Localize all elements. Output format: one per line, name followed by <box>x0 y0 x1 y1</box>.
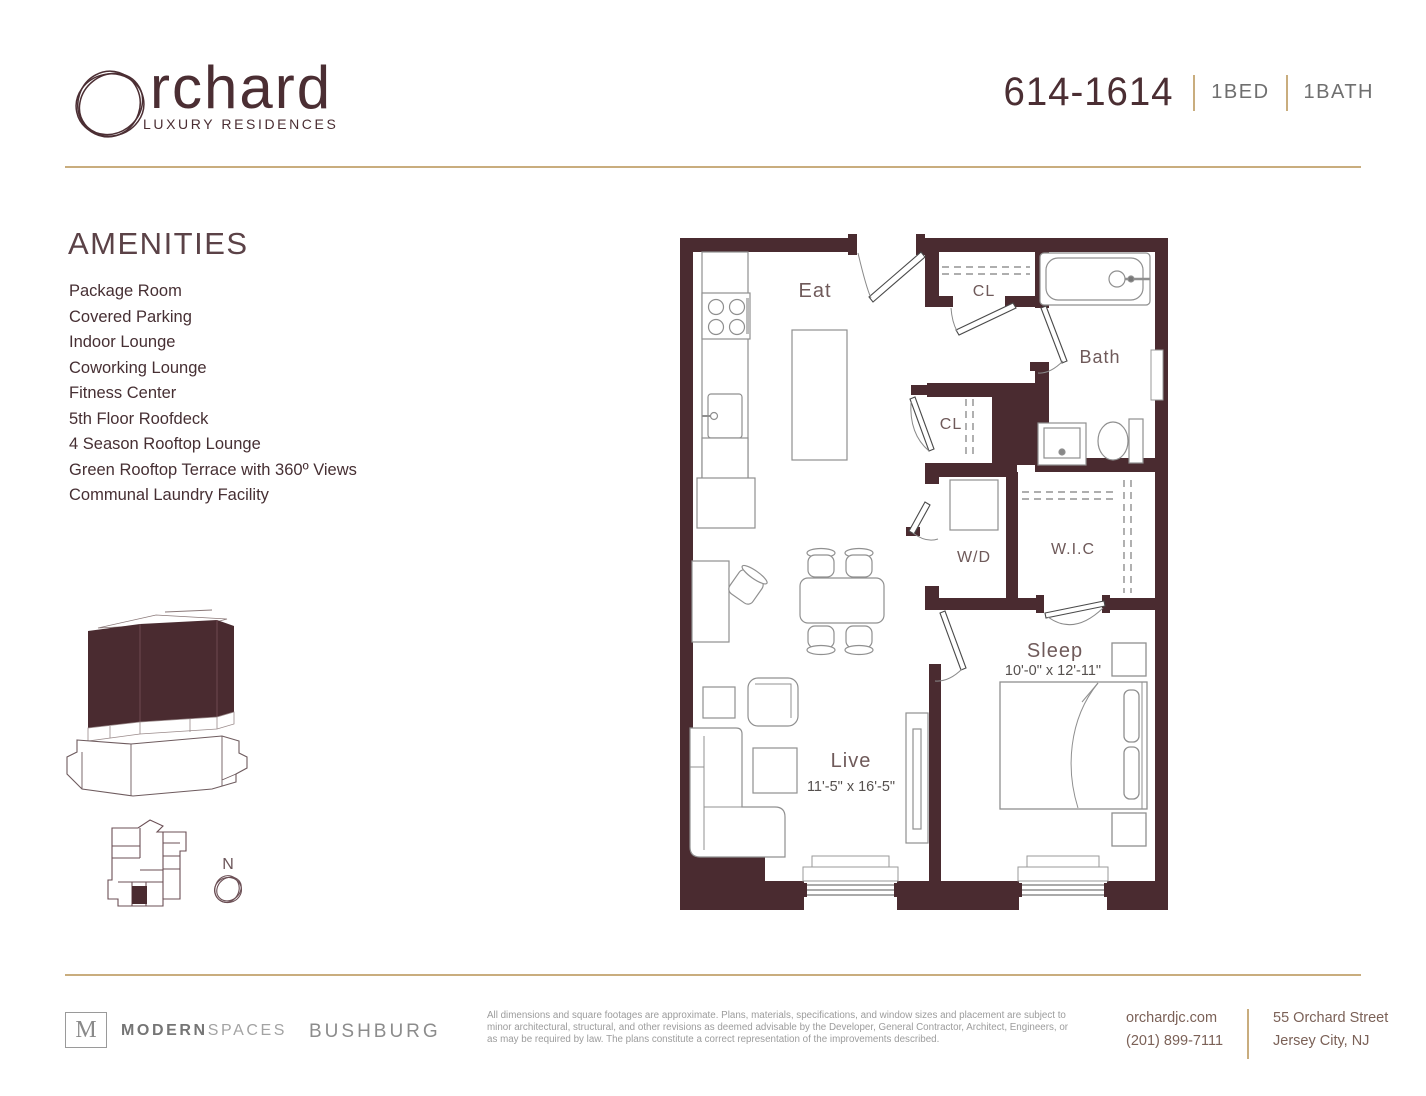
desk <box>692 561 729 642</box>
header-divider <box>1286 75 1288 111</box>
kitchen-cabinet <box>702 438 748 480</box>
entry-door <box>869 252 925 302</box>
keyplan: N <box>95 816 265 928</box>
header-rule <box>65 166 1361 168</box>
amenity-item: Covered Parking <box>69 305 357 331</box>
keyplan-unit-highlight <box>132 886 147 904</box>
dining-table <box>800 578 884 623</box>
bath-wall-recess <box>1151 350 1163 400</box>
bath-door <box>1041 306 1067 363</box>
pillow <box>1124 690 1139 742</box>
nightstand <box>1112 813 1146 846</box>
amenity-item: 5th Floor Roofdeck <box>69 407 357 433</box>
phone-number: (201) 899-7111 <box>1126 1030 1223 1053</box>
building-illustration <box>60 605 260 805</box>
contact-divider <box>1247 1009 1249 1059</box>
amenity-item: Coworking Lounge <box>69 356 357 382</box>
room-label-wic: W.I.C <box>1051 541 1095 558</box>
website: orchardjc.com <box>1126 1007 1223 1030</box>
unit-bed-count: 1BED <box>1211 81 1269 104</box>
modernspaces-logo-icon: M <box>65 1012 107 1048</box>
brand-tagline: LUXURY RESIDENCES <box>143 116 338 132</box>
modernspaces-wordmark: MODERNSPACES <box>121 1022 287 1040</box>
bedroom-door <box>940 611 966 670</box>
modernspaces-logo-letter: M <box>75 1017 96 1044</box>
room-label-eat: Eat <box>798 280 831 302</box>
tv <box>913 729 921 829</box>
north-arrow-icon <box>211 872 246 906</box>
coffee-table <box>753 748 797 793</box>
nightstand <box>1112 643 1146 676</box>
living-furniture <box>690 549 928 858</box>
building-tower <box>88 620 234 728</box>
toilet <box>1098 422 1128 460</box>
floorplan-diagram: Eat CL Bath CL W/D W.I.C Sleep Live 10'-… <box>678 230 1170 914</box>
header-divider <box>1193 75 1195 111</box>
address-street: 55 Orchard Street <box>1273 1007 1388 1030</box>
room-label-sleep: Sleep <box>1027 640 1083 662</box>
unit-number: 614-1614 <box>1004 70 1174 115</box>
modernspaces-light: SPACES <box>208 1022 287 1039</box>
room-label-closet1: CL <box>973 283 995 300</box>
closet2-door <box>910 397 934 451</box>
brochure-page: rchard LUXURY RESIDENCES 614-1614 1BED 1… <box>0 0 1426 1096</box>
wic-door <box>1045 601 1105 618</box>
north-label: N <box>222 856 234 873</box>
pillow <box>1124 747 1139 799</box>
amenity-item: 4 Season Rooftop Lounge <box>69 432 357 458</box>
toilet-tank <box>1129 419 1143 463</box>
amenities-title: AMENITIES <box>68 226 249 262</box>
fridge <box>697 478 755 528</box>
legal-disclaimer: All dimensions and square footages are a… <box>487 1010 1079 1045</box>
room-label-live: Live <box>831 750 872 772</box>
contact-web-phone: orchardjc.com (201) 899-7111 <box>1126 1007 1223 1053</box>
amenity-item: Indoor Lounge <box>69 330 357 356</box>
amenity-item: Green Rooftop Terrace with 360º Views <box>69 458 357 484</box>
brand-wordmark: rchard <box>150 58 332 118</box>
desk-chair <box>726 563 770 607</box>
live-dimensions: 11'-5" x 16'-5" <box>807 779 895 795</box>
kitchen-island <box>792 330 847 460</box>
room-label-closet2: CL <box>940 416 962 433</box>
contact-block: orchardjc.com (201) 899-7111 55 Orchard … <box>1126 1007 1388 1059</box>
unit-bath-count: 1BATH <box>1304 81 1374 104</box>
amenity-item: Package Room <box>69 279 357 305</box>
washer-dryer-unit <box>950 480 998 530</box>
footer-rule <box>65 974 1361 976</box>
building-base <box>67 736 247 796</box>
amenity-item: Communal Laundry Facility <box>69 483 357 509</box>
unit-header: 614-1614 1BED 1BATH <box>1000 70 1374 115</box>
orchard-logo-o-icon <box>66 60 152 146</box>
room-label-bath: Bath <box>1079 347 1120 367</box>
amenities-list: Package Room Covered Parking Indoor Loun… <box>69 279 357 509</box>
closet1-door <box>956 303 1016 335</box>
bushburg-wordmark: BUSHBURG <box>309 1021 441 1043</box>
contact-address: 55 Orchard Street Jersey City, NJ <box>1273 1007 1388 1053</box>
address-city: Jersey City, NJ <box>1273 1030 1388 1053</box>
modernspaces-bold: MODERN <box>121 1022 208 1039</box>
side-table <box>703 687 735 718</box>
room-label-washer-dryer: W/D <box>957 549 991 566</box>
amenity-item: Fitness Center <box>69 381 357 407</box>
sleep-dimensions: 10'-0" x 12'-11" <box>1005 663 1101 679</box>
